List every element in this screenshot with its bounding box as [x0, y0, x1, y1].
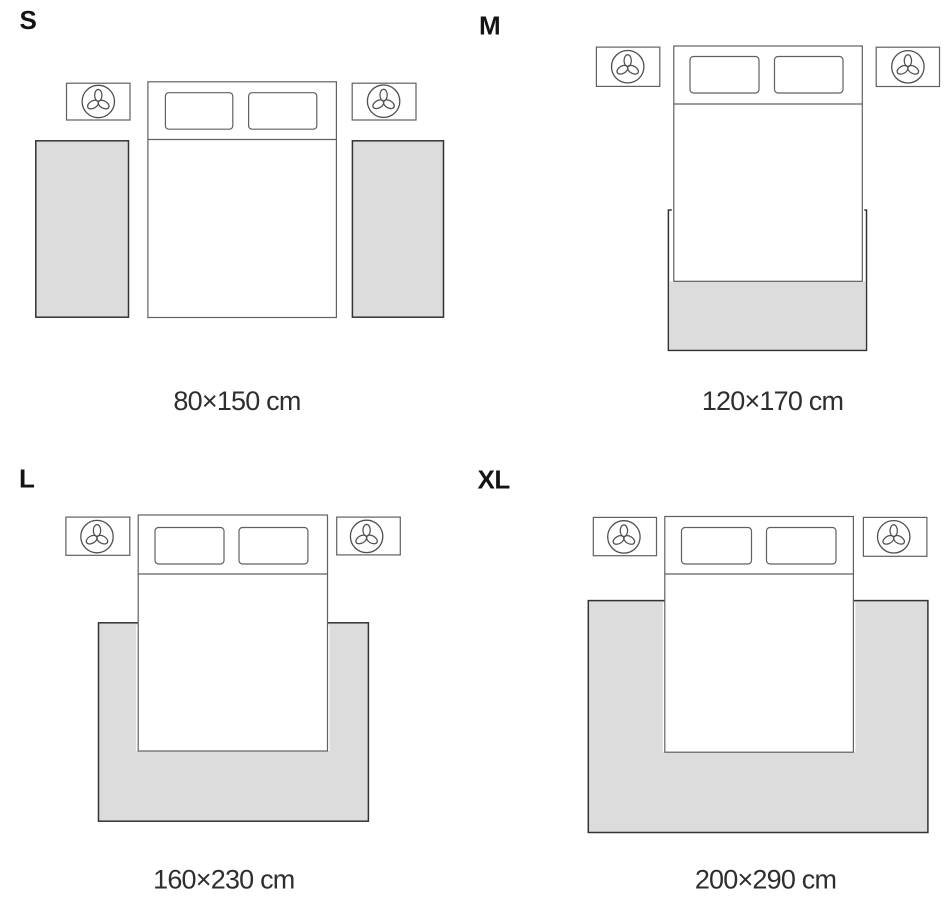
svg-text:80×150 cm: 80×150 cm — [173, 386, 300, 416]
svg-text:L: L — [19, 464, 35, 494]
svg-text:M: M — [479, 11, 500, 41]
svg-text:S: S — [20, 5, 37, 35]
svg-text:XL: XL — [478, 465, 511, 495]
svg-text:160×230 cm: 160×230 cm — [153, 865, 294, 895]
svg-text:200×290 cm: 200×290 cm — [695, 865, 836, 895]
svg-text:120×170 cm: 120×170 cm — [702, 386, 843, 416]
